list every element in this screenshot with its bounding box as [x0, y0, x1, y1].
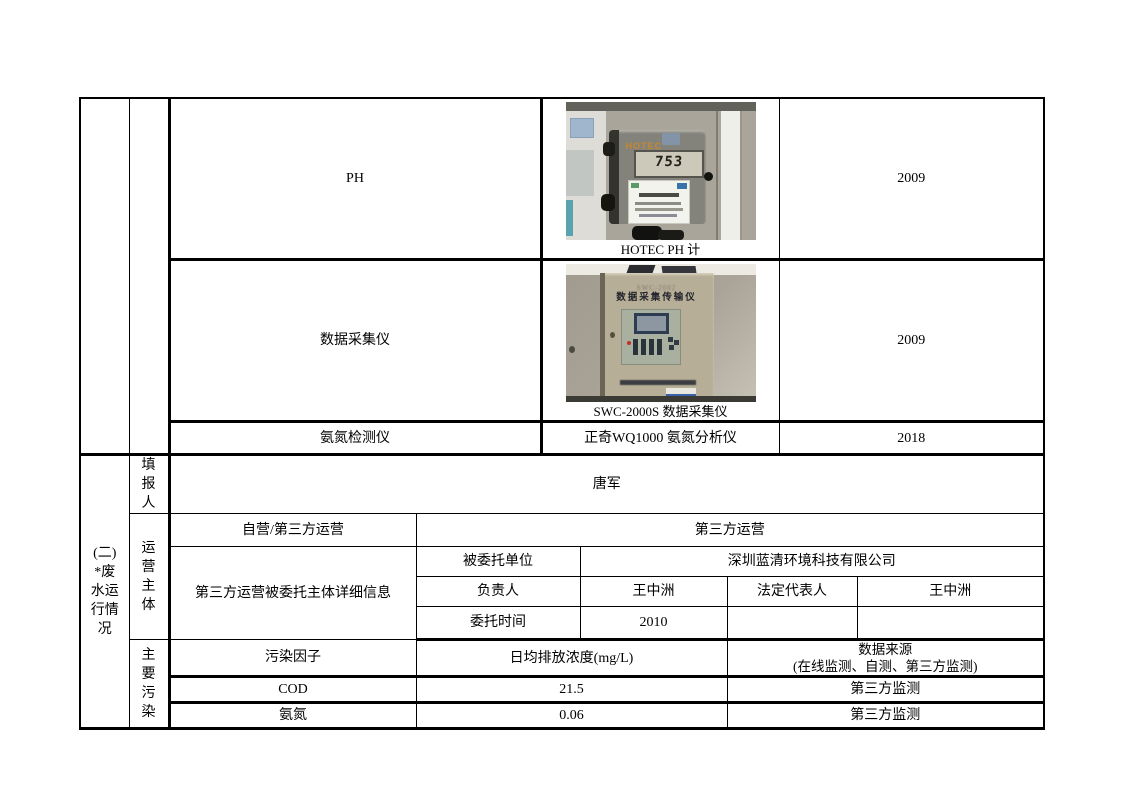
- entrusted-unit-label: 被委托单位: [416, 547, 580, 577]
- section-label: (二) *废 水运 行情 况: [80, 455, 129, 729]
- document-page: PH HOTEC: [0, 0, 1123, 794]
- white-pipe: [721, 111, 742, 240]
- pollution-row-ammonia: 氨氮 0.06 第三方监测: [80, 703, 1044, 729]
- pollutant-concentration: 0.06: [416, 703, 727, 729]
- device-blue-logo: [662, 133, 680, 145]
- keypad: [633, 339, 665, 355]
- background-teal-edge: [566, 200, 573, 236]
- entrust-time-value: 2010: [580, 607, 727, 640]
- entrusted-unit-row: 第三方运营被委托主体详细信息 被委托单位 深圳蓝清环境科技有限公司: [80, 547, 1044, 577]
- equipment-row-collector: 数据采集仪 SWC-2002 数据采集传输仪: [80, 260, 1044, 422]
- background-gray-box: [566, 150, 594, 196]
- device-info-label: [628, 180, 690, 224]
- side-knob: [704, 172, 713, 181]
- photo-caption: SWC-2000S 数据采集仪: [594, 404, 728, 420]
- empty-cell: [727, 607, 857, 640]
- photo-top-shadow: [566, 102, 756, 111]
- subsection-label-cell-empty: [129, 98, 169, 455]
- panel-lcd: [634, 313, 669, 334]
- lcd-value: 753: [635, 154, 702, 171]
- cable-gland: [601, 194, 615, 211]
- equipment-model: 正奇WQ1000 氨氮分析仪: [541, 422, 779, 455]
- handwriting-mark: [661, 266, 696, 273]
- lcd-display: 753: [634, 150, 704, 178]
- operation-mode-row: 运 营 主 体 自营/第三方运营 第三方运营: [80, 514, 1044, 547]
- photo-caption: HOTEC PH 计: [621, 242, 700, 258]
- data-collector-photo: SWC-2002 数据采集传输仪: [566, 264, 756, 402]
- pollution-row-cod: COD 21.5 第三方监测: [80, 677, 1044, 703]
- red-led: [627, 341, 631, 345]
- label-text-line: [639, 214, 677, 217]
- operation-label: 运 营 主 体: [129, 514, 169, 640]
- entrust-time-label: 委托时间: [416, 607, 580, 640]
- manager-value: 王中洲: [580, 577, 727, 607]
- wall-line: [716, 111, 718, 240]
- cable: [658, 230, 684, 240]
- legal-rep-label: 法定代表人: [727, 577, 857, 607]
- label-title-line: [639, 193, 679, 197]
- equipment-name: 数据采集仪: [169, 260, 541, 422]
- pollutant-source: 第三方监测: [727, 703, 1044, 729]
- wall-screw: [569, 346, 575, 353]
- pollution-factor-header: 污染因子: [169, 640, 416, 677]
- reporter-row: (二) *废 水运 行情 况 填 报 人 唐军: [80, 455, 1044, 514]
- pollution-concentration-header: 日均排放浓度(mg/L): [416, 640, 727, 677]
- entrusted-unit-value: 深圳蓝清环境科技有限公司: [580, 547, 1044, 577]
- section-label-cell-empty: [80, 98, 129, 455]
- photo-bottom-shadow: [566, 396, 756, 402]
- equipment-name: 氨氮检测仪: [169, 422, 541, 455]
- empty-cell: [857, 607, 1044, 640]
- equipment-year: 2009: [779, 260, 1044, 422]
- keypad-side: [668, 337, 679, 351]
- cabinet-company-text: [620, 380, 696, 385]
- pollutant-factor: 氨氮: [169, 703, 416, 729]
- operation-mode-value: 第三方运营: [416, 514, 1044, 547]
- pollutant-factor: COD: [169, 677, 416, 703]
- handwriting-mark: [626, 265, 655, 273]
- pollution-source-header: 数据来源 (在线监测、自测、第三方监测): [727, 640, 1044, 677]
- monitoring-form-table: PH HOTEC: [79, 97, 1045, 730]
- cable-gland: [603, 142, 615, 156]
- manager-label: 负责人: [416, 577, 580, 607]
- cabinet-title-text: 数据采集传输仪: [600, 290, 714, 307]
- pollutant-source: 第三方监测: [727, 677, 1044, 703]
- label-text-line: [635, 202, 681, 205]
- pollution-header-row: 主 要 污 染 污染因子 日均排放浓度(mg/L) 数据来源 (在线监测、自测、…: [80, 640, 1044, 677]
- cabinet-lock: [610, 332, 615, 338]
- background-blue-label: [570, 118, 594, 138]
- equipment-name: PH: [169, 98, 541, 260]
- equipment-photo-cell: HOTEC 753: [541, 98, 779, 260]
- equipment-photo-cell: SWC-2002 数据采集传输仪: [541, 260, 779, 422]
- pollutant-concentration: 21.5: [416, 677, 727, 703]
- panel-screen: [637, 316, 666, 331]
- reporter-value: 唐军: [169, 455, 1044, 514]
- pollution-label: 主 要 污 染: [129, 640, 169, 729]
- equipment-row-ammonia: 氨氮检测仪 正奇WQ1000 氨氮分析仪 2018: [80, 422, 1044, 455]
- legal-rep-value: 王中洲: [857, 577, 1044, 607]
- ph-meter-photo: HOTEC 753: [566, 102, 756, 240]
- operation-mode-label: 自营/第三方运营: [169, 514, 416, 547]
- label-logo: [631, 183, 639, 188]
- label-blue-tag: [677, 183, 687, 189]
- equipment-row-ph: PH HOTEC: [80, 98, 1044, 260]
- equipment-year: 2018: [779, 422, 1044, 455]
- equipment-year: 2009: [779, 98, 1044, 260]
- control-panel: [621, 309, 681, 365]
- third-party-detail-label: 第三方运营被委托主体详细信息: [169, 547, 416, 640]
- label-text-line: [635, 208, 683, 211]
- reporter-label: 填 报 人: [129, 455, 169, 514]
